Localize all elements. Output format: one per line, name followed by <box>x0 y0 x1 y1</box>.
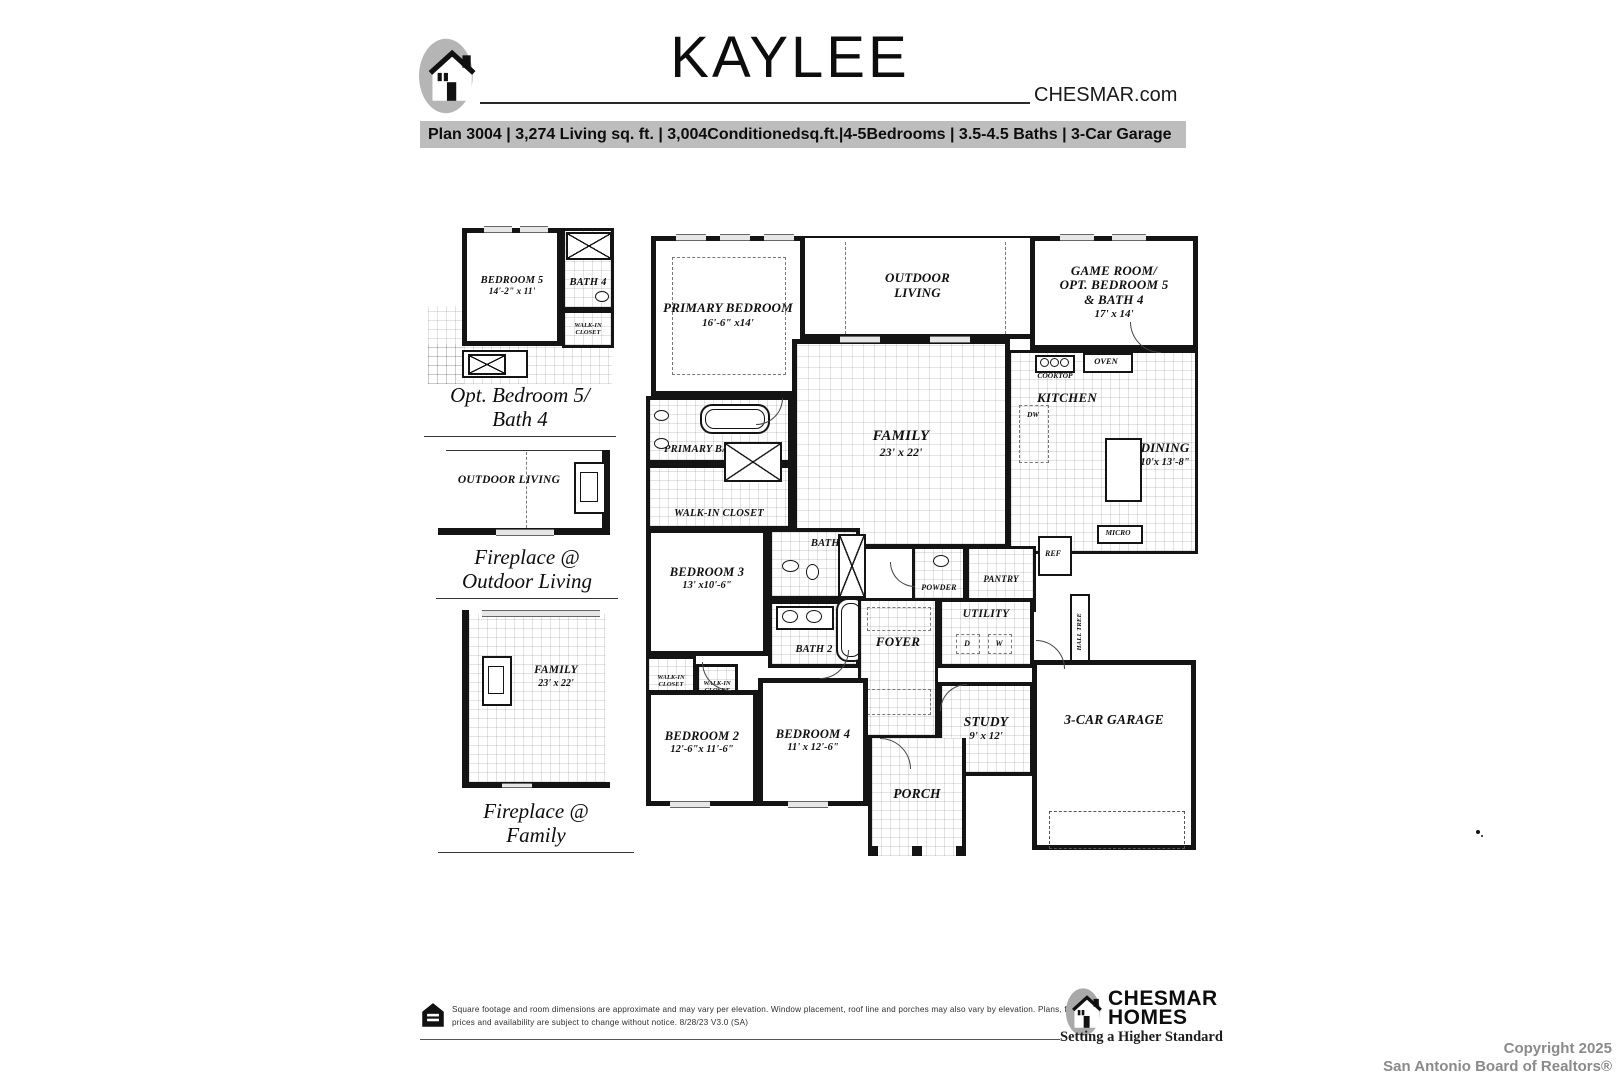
equal-housing-icon <box>420 1002 446 1030</box>
garage-door-outline <box>1049 811 1185 849</box>
room-family-option: FAMILY 23' x 22' <box>510 664 602 690</box>
wall-line <box>446 450 606 451</box>
cooktop-hatch <box>468 354 506 375</box>
window <box>1112 234 1146 241</box>
option-plan-fireplace-outdoor: OUTDOOR LIVING <box>438 446 616 546</box>
window <box>788 801 828 808</box>
burner <box>1050 358 1059 367</box>
sink <box>806 610 822 623</box>
room-bedroom2: BEDROOM 2 12'-6"x 11'-6" <box>646 690 758 806</box>
room-bedroom5-option: BEDROOM 5 14'-2" x 11' <box>462 228 562 346</box>
porch-post <box>868 846 878 856</box>
shower <box>838 534 866 598</box>
window <box>670 801 710 808</box>
micro-label: MICRO <box>1099 529 1137 537</box>
toilet <box>806 564 819 580</box>
room-game-room: GAME ROOM/ OPT. BEDROOM 5 & BATH 4 17' x… <box>1030 236 1198 350</box>
option-caption-outdoor: Fireplace @ Outdoor Living <box>436 546 618 599</box>
column-line <box>845 242 846 334</box>
option-plan-fireplace-family: FAMILY 23' x 22' <box>458 604 614 800</box>
main-floor-plan: PRIMARY BEDROOM 16'-6" x14' OUTDOOR LIVI… <box>640 232 1198 860</box>
burner <box>1040 358 1049 367</box>
room-bath4-option: BATH 4 <box>562 228 614 310</box>
hall-tree: HALL TREE <box>1070 594 1090 670</box>
window <box>764 234 794 241</box>
fireplace-inner <box>488 666 504 694</box>
room-kitchen-label: KITCHEN <box>1025 391 1109 406</box>
room-bedroom3: BEDROOM 3 13' x10'-6" <box>646 528 768 656</box>
room-walkin-closet-option: WALK-IN CLOSET <box>562 310 614 348</box>
window <box>840 336 880 343</box>
sink <box>782 610 798 623</box>
room-outdoor-living: OUTDOOR LIVING <box>805 236 1030 339</box>
fireplace-inner <box>580 472 598 502</box>
window <box>930 336 970 343</box>
website-link: CHESMAR.com <box>1034 84 1177 107</box>
window <box>520 226 548 233</box>
door-arc <box>820 650 849 679</box>
room-bedroom4: BEDROOM 4 11' x 12'-6" <box>758 678 868 806</box>
specs-bar: Plan 3004 | 3,274 Living sq. ft. | 3,004… <box>420 121 1186 148</box>
room-kitchen-dining: COOKTOP OVEN KITCHEN DW DINING 10'x 13'-… <box>1008 350 1198 554</box>
shower <box>566 232 612 260</box>
shower <box>724 442 782 482</box>
column-line <box>1005 242 1006 334</box>
option-caption-bedroom5: Opt. Bedroom 5/ Bath 4 <box>424 384 616 437</box>
porch-post <box>956 846 966 856</box>
window <box>484 226 512 233</box>
dryer-label: D <box>962 640 972 648</box>
wall <box>462 782 610 788</box>
sink <box>782 560 799 572</box>
carpet-outline <box>672 257 786 375</box>
sink <box>595 291 609 302</box>
option-plan-bedroom5-bath4: BEDROOM 5 14'-2" x 11' BATH 4 WALK-IN CL… <box>428 226 618 386</box>
plan-title: KAYLEE <box>560 24 1020 91</box>
footer-rule <box>420 1039 1060 1040</box>
window <box>1060 234 1094 241</box>
ceiling-line <box>867 689 931 715</box>
bathtub <box>1476 830 1480 834</box>
ref-label: REF <box>1040 550 1066 558</box>
dw-label: DW <box>1023 411 1043 419</box>
patio-divider <box>526 452 527 528</box>
room-primary-bedroom: PRIMARY BEDROOM 16'-6" x14' <box>651 236 805 396</box>
floor-plan-sheet: { "header": { "title": "KAYLEE", "websit… <box>0 0 1620 1080</box>
oven-label: OVEN <box>1085 357 1127 366</box>
room-utility: UTILITY D W <box>938 598 1034 668</box>
room-outdoor-living-option: OUTDOOR LIVING <box>454 474 564 487</box>
washer-label: W <box>994 640 1004 648</box>
sink <box>654 410 669 421</box>
sink <box>933 555 949 567</box>
wall <box>462 610 469 786</box>
window <box>496 529 554 536</box>
burner <box>1060 358 1069 367</box>
door-arc <box>1036 640 1065 669</box>
ceiling-line <box>867 607 931 631</box>
window <box>502 783 532 788</box>
room-garage: 3-CAR GARAGE <box>1032 660 1196 850</box>
room-family: FAMILY 23' x 22' <box>792 339 1010 549</box>
porch-post <box>912 846 922 856</box>
room-dining-label: DINING 10'x 13'-8" <box>1131 441 1199 470</box>
option-caption-family: Fireplace @ Family <box>438 800 634 853</box>
copyright-notice: Copyright 2025 San Antonio Board of Real… <box>1200 1040 1612 1076</box>
chesmar-logo-icon <box>418 36 480 116</box>
disclaimer-text: Square footage and room dimensions are a… <box>452 1003 1098 1029</box>
door-arc <box>890 562 915 587</box>
hall-tree-label: HALL TREE <box>1076 613 1083 651</box>
chesmar-homes-wordmark: CHESMAR HOMES <box>1108 989 1218 1027</box>
room-foyer: FOYER <box>858 598 938 738</box>
window <box>676 234 706 241</box>
sink <box>654 438 669 449</box>
window <box>720 234 750 241</box>
header-rule <box>480 102 1030 104</box>
cooktop-label: COOKTOP <box>1029 372 1081 380</box>
window <box>482 610 600 617</box>
